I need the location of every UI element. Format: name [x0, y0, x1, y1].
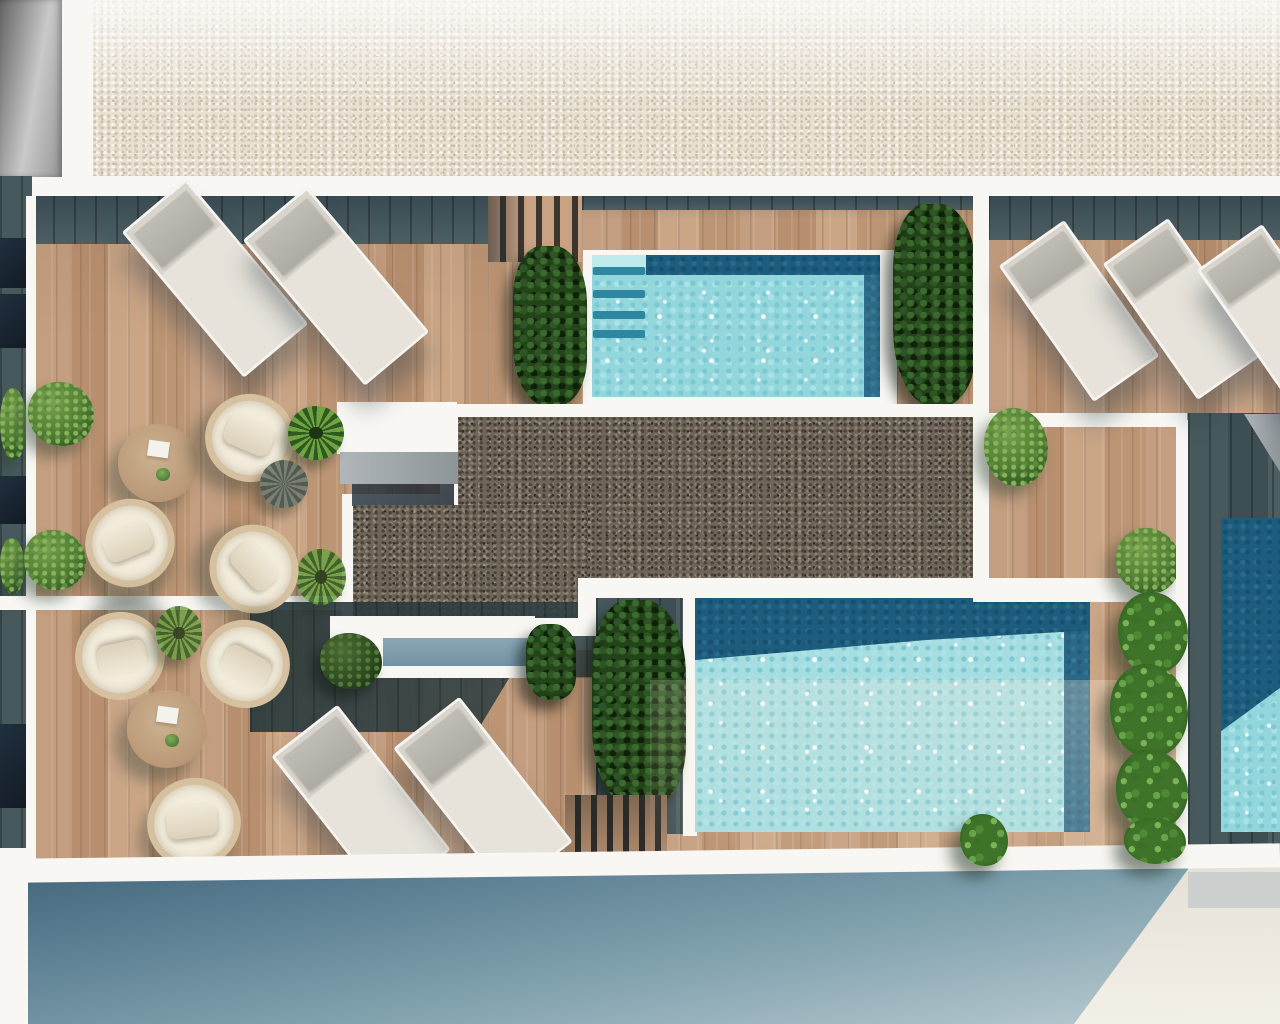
shadow-bush-west [320, 633, 382, 689]
facade-shaded [0, 866, 1280, 1024]
rooftop-gravel-field [93, 0, 1280, 176]
vine-2 [1110, 664, 1188, 758]
left-wall-edge [0, 0, 62, 177]
pool1-plants-west [513, 246, 587, 406]
side-bush-2 [0, 538, 25, 594]
corner-white-edge [0, 848, 28, 1024]
pool1-step-2 [593, 290, 645, 298]
palm-1 [288, 406, 344, 460]
pool1-step-1 [593, 267, 645, 275]
bush-midleft [24, 530, 86, 590]
center-divider-wall [973, 196, 989, 602]
plant-gray-1 [260, 460, 308, 508]
shadow-palm [296, 549, 346, 605]
shadow-bush-east [526, 624, 576, 700]
pool1-shade-right [864, 255, 880, 397]
pool1-step-ledge [592, 255, 646, 267]
patio-ramp [340, 452, 458, 484]
rooftop-terrace-render [0, 0, 1280, 1024]
east-ground-shade [1188, 872, 1280, 908]
table-2 [127, 690, 207, 768]
pool1-step-4 [593, 330, 645, 338]
pool2-shade-right [1064, 628, 1090, 832]
side-bush-1 [0, 388, 27, 460]
side-pergola-3 [0, 476, 26, 524]
parapet-plant [960, 814, 1008, 866]
bench-steel-step [383, 638, 531, 666]
vine-4 [1124, 818, 1186, 864]
pool1-plants-east [893, 204, 977, 406]
vine-1 [1118, 592, 1188, 674]
side-divider-wall [26, 196, 36, 864]
patio-platform [337, 402, 457, 454]
stairs-lower [565, 795, 667, 859]
patio-ramp-shadow [352, 484, 454, 506]
east-bush-2 [1116, 528, 1180, 594]
pool1-step-3 [593, 311, 645, 319]
shade-band-east [988, 196, 1280, 240]
pool1-shade-top [646, 255, 880, 275]
table-1 [118, 424, 198, 502]
east-bush-1 [984, 408, 1048, 486]
pool1-water [592, 255, 880, 397]
palm-2 [156, 606, 202, 660]
pool2-plants-west [592, 600, 686, 808]
bush-topleft [28, 382, 94, 446]
